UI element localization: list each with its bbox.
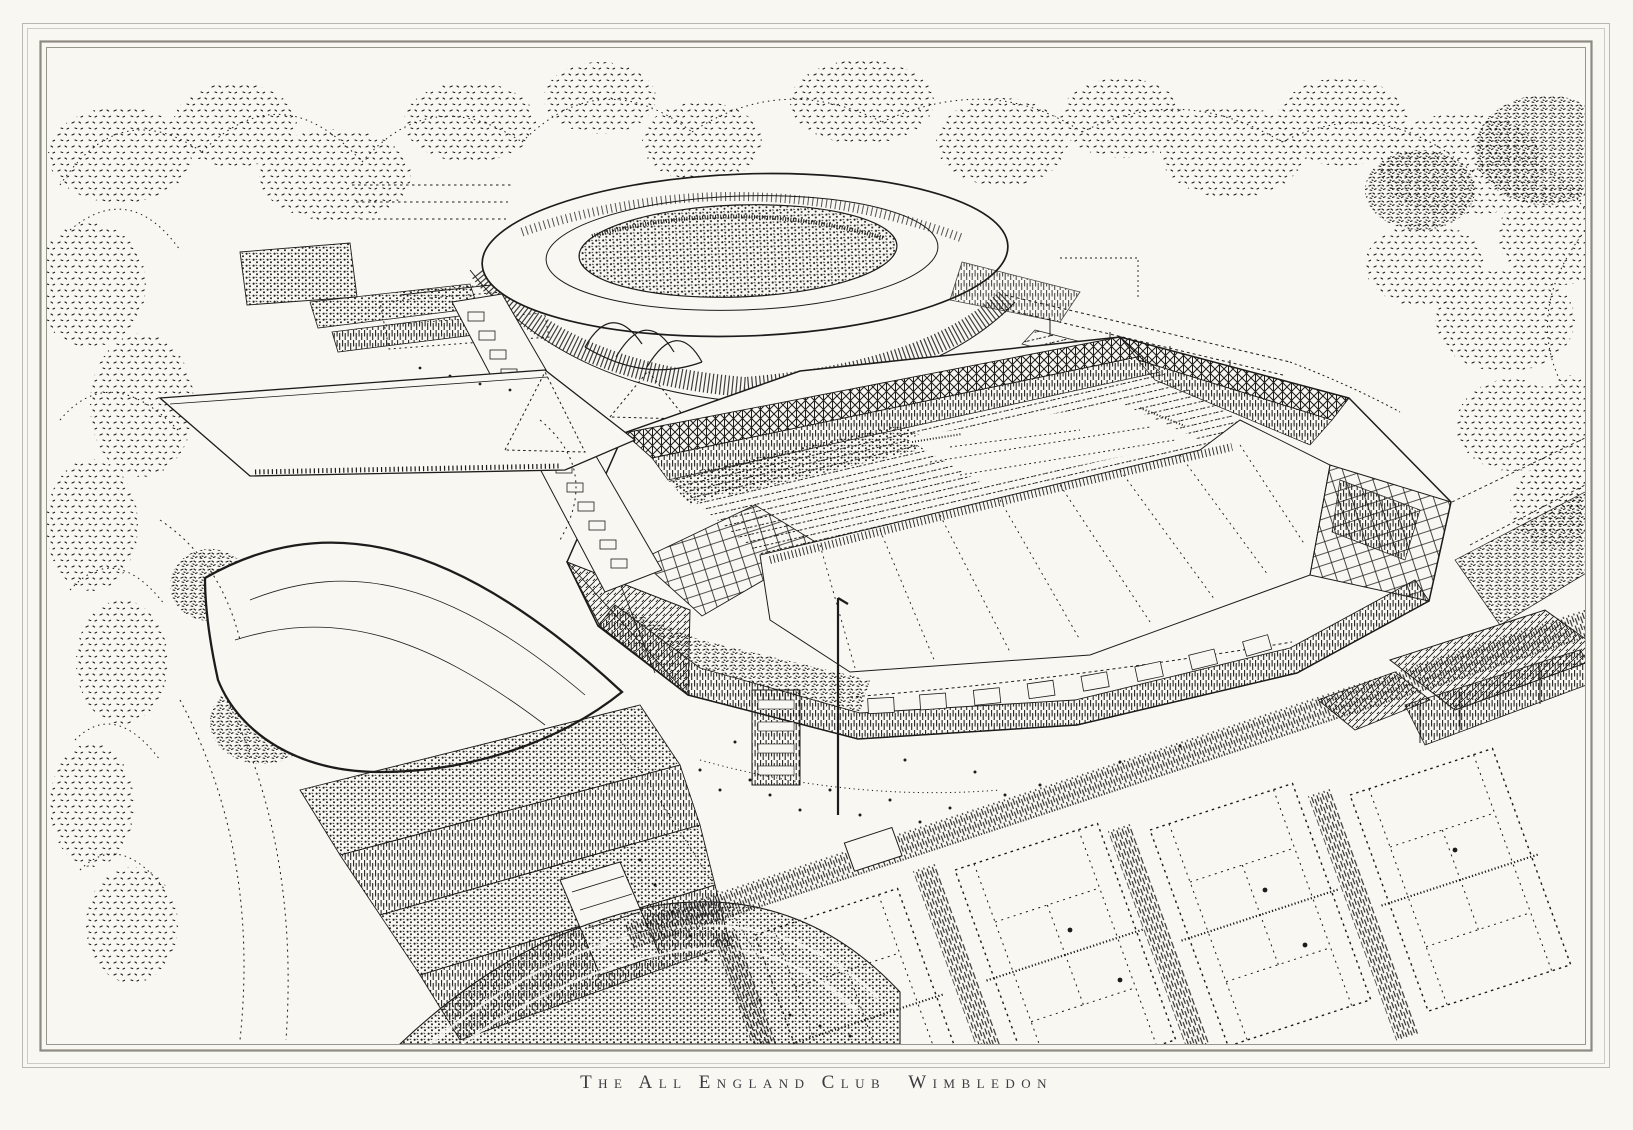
print-caption: The All England Club Wimbledon <box>0 1072 1633 1112</box>
wimbledon-aerial-illustration <box>0 0 1633 1130</box>
art-print-page: The All England Club Wimbledon <box>0 0 1633 1130</box>
